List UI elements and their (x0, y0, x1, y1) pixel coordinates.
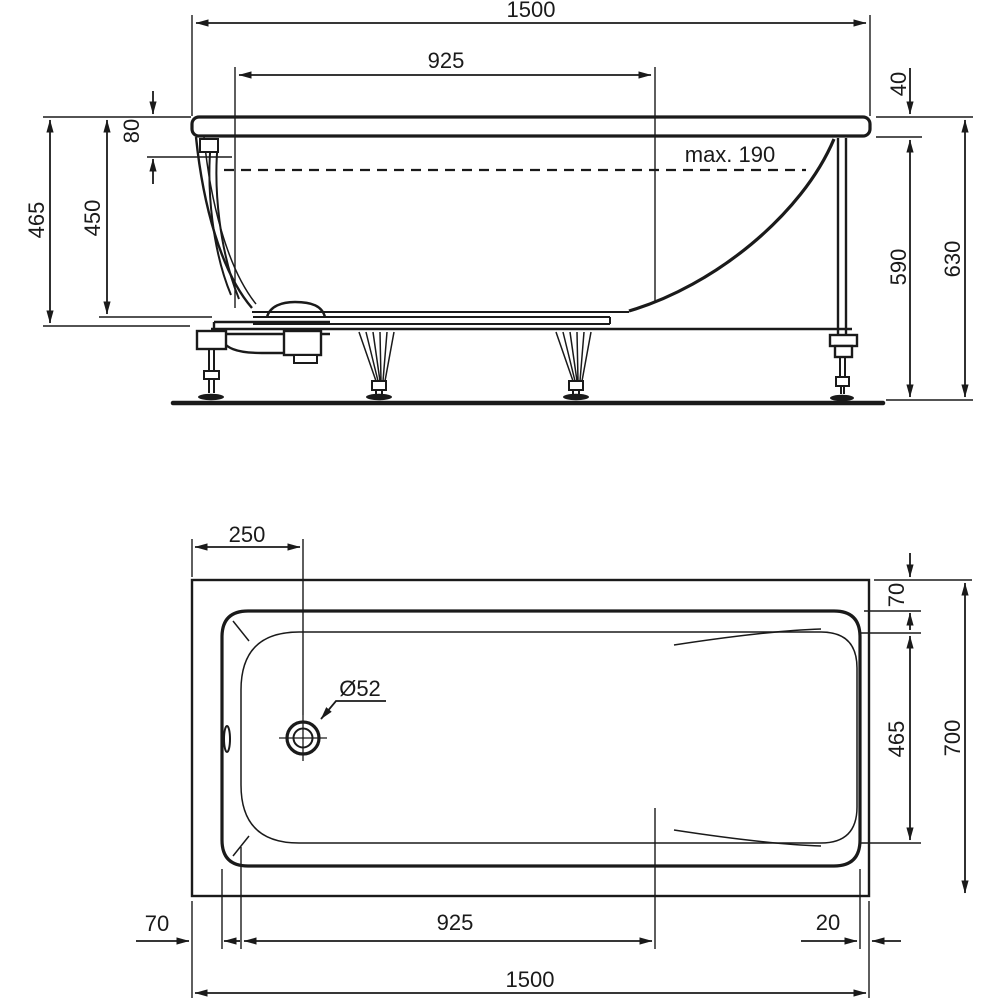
tub-left-outer-wall (196, 137, 252, 308)
waste-outlet-tab (294, 355, 317, 363)
dim-depth-465-label: 465 (24, 202, 49, 239)
leg-front-left (197, 331, 226, 400)
side-dimension-lines (50, 23, 965, 397)
bathtub-technical-drawing: 1500 925 40 80 max. 190 465 450 590 630 (0, 0, 1000, 1000)
dim-drain-diameter-label: Ø52 (339, 676, 381, 701)
bathtub-plan-outline (192, 580, 869, 896)
dim-depth-450-label: 450 (80, 200, 105, 237)
tub-rim-profile (192, 117, 870, 136)
dim-right-rim-width-label: 20 (816, 910, 840, 935)
plan-extension-lines (192, 539, 972, 998)
trap-curve (219, 334, 284, 353)
overflow-hole-mark (224, 726, 230, 752)
dim-height-590-label: 590 (886, 249, 911, 286)
leg-trestle-right (556, 332, 591, 400)
side-elevation-view: 1500 925 40 80 max. 190 465 450 590 630 (24, 0, 973, 403)
drain-diameter-leader (321, 701, 386, 719)
dim-floor-length-bottom-label: 925 (437, 910, 474, 935)
dim-left-rim-width-label: 70 (145, 911, 169, 936)
overflow-pipe-outer (209, 141, 231, 295)
technical-drawing-page: 1500 925 40 80 max. 190 465 450 590 630 (0, 0, 1000, 1000)
dim-overall-width-label: 700 (940, 720, 965, 757)
dim-max-fill-label: max. 190 (685, 142, 776, 167)
dim-overflow-offset-label: 80 (119, 119, 144, 143)
leg-trestle-left (359, 332, 394, 400)
leg-rear-right (830, 138, 857, 401)
dim-height-630-label: 630 (940, 241, 965, 278)
plan-view: 250 Ø52 70 465 700 70 925 20 1500 (136, 522, 972, 998)
dim-floor-width-label: 465 (884, 721, 909, 758)
overflow-clip (200, 139, 218, 152)
dim-drain-offset-label: 250 (229, 522, 266, 547)
tub-floor-plan (241, 632, 857, 843)
waste-outlet-box (284, 331, 321, 355)
dim-top-rim-width-label: 70 (884, 583, 909, 607)
drain-circle (279, 715, 327, 761)
plan-dimension-lines (136, 547, 965, 993)
dim-overall-length-top-label: 1500 (507, 0, 556, 22)
drain-fitting-hump (267, 302, 325, 317)
corner-radius-tick-top (233, 621, 249, 641)
dim-rim-height-label: 40 (886, 72, 911, 96)
dim-overall-length-bottom-label: 1500 (506, 967, 555, 992)
dim-floor-length-top-label: 925 (428, 48, 465, 73)
